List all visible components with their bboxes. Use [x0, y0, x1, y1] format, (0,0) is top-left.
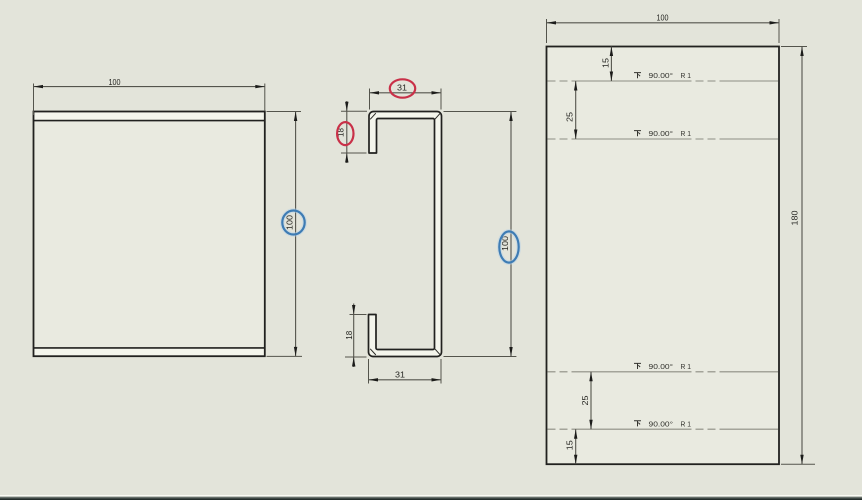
svg-text:R 1: R 1	[681, 362, 692, 371]
svg-text:15: 15	[600, 58, 610, 68]
svg-text:31: 31	[395, 369, 405, 379]
svg-text:25: 25	[564, 112, 574, 122]
svg-text:R 1: R 1	[681, 71, 692, 80]
svg-text:15: 15	[565, 440, 575, 450]
svg-text:90.00°: 90.00°	[649, 419, 674, 428]
svg-text:90.00°: 90.00°	[649, 129, 674, 138]
svg-text:100: 100	[657, 12, 669, 22]
svg-text:R 1: R 1	[681, 129, 692, 138]
svg-text:90.00°: 90.00°	[649, 362, 674, 371]
svg-text:R 1: R 1	[681, 419, 692, 428]
svg-text:31: 31	[397, 82, 407, 92]
svg-text:18: 18	[344, 331, 354, 340]
svg-text:25: 25	[580, 395, 590, 405]
svg-text:100: 100	[109, 77, 121, 87]
svg-text:90.00°: 90.00°	[649, 71, 674, 80]
svg-text:180: 180	[790, 210, 800, 225]
